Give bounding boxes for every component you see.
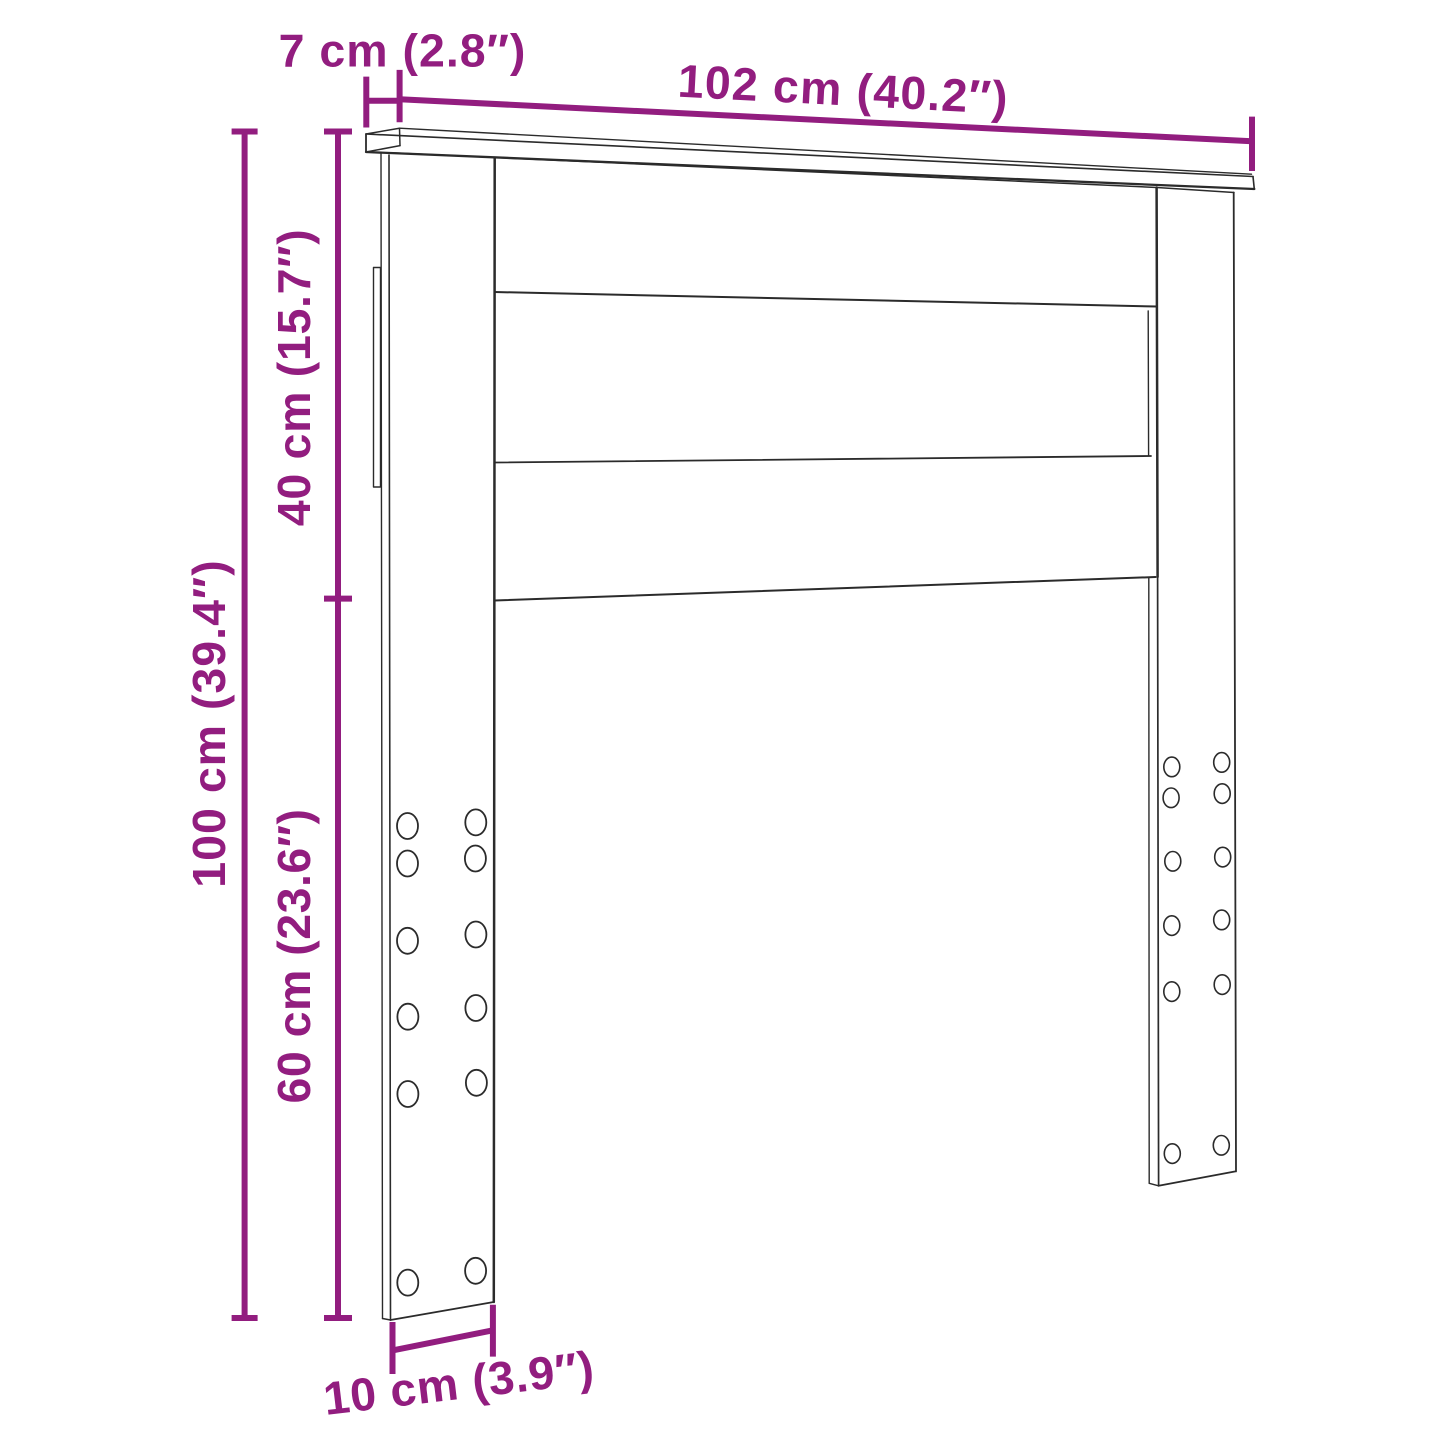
svg-text:60 cm (23.6″): 60 cm (23.6″) (268, 808, 320, 1103)
svg-text:40 cm (15.7″): 40 cm (15.7″) (268, 229, 320, 527)
svg-text:100 cm (39.4″): 100 cm (39.4″) (183, 559, 235, 887)
svg-text:7 cm (2.8″): 7 cm (2.8″) (279, 25, 527, 77)
